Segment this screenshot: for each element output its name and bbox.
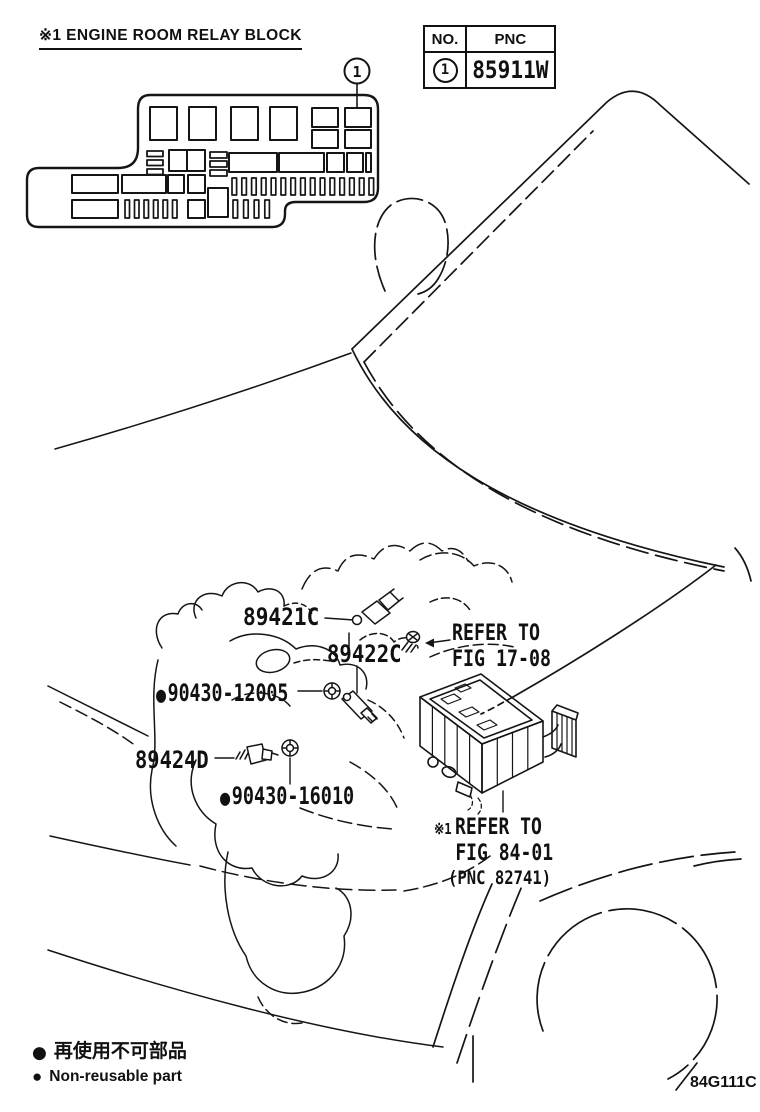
relay-block-callout-number[interactable]: 1 (352, 63, 361, 81)
refer-fig-84-01-line3: (PNC 82741) (448, 867, 553, 889)
pnc-table-no-header: NO. (424, 26, 466, 52)
refer-fig-84-01-line1: ※1REFER TO (434, 815, 553, 841)
bolt-glyph (402, 632, 420, 653)
refer-fig-84-01-line2: FIG 84-01 (455, 841, 553, 867)
refer-fig-84-01-refer: REFER TO (455, 815, 542, 840)
parts-catalog-page: 1 ※1 ENGINE ROOM RELAY BLOCK NO. PNC 1 8… (0, 0, 760, 1112)
washer-90430-16010-glyph (282, 740, 298, 756)
note-mark: ※1 (434, 820, 452, 838)
refer-fig-84-01[interactable]: ※1REFER TO FIG 84-01 (PNC 82741) (434, 815, 553, 889)
refer-fig-17-08-line2: FIG 17-08 (452, 647, 551, 673)
car-body-outline (48, 91, 751, 1090)
legend: ●再使用不可部品 ●Non-reusable part (32, 1036, 187, 1087)
callout-90430-12005-text: 90430-12005 (168, 679, 289, 707)
legend-en-text: Non-reusable part (49, 1068, 182, 1085)
relay-block-3d-drawing (420, 674, 578, 814)
pnc-table-pnc-header: PNC (466, 26, 555, 52)
callout-90430-12005[interactable]: ●90430-12005 (156, 681, 288, 707)
refer-fig-17-08[interactable]: REFER TO FIG 17-08 (452, 621, 551, 673)
callout-89421c[interactable]: 89421C (243, 605, 319, 629)
legend-jp-text: 再使用不可部品 (54, 1040, 187, 1062)
washer-90430-12005-glyph (324, 683, 340, 699)
pnc-row-number-badge[interactable]: 1 (433, 58, 458, 83)
non-reusable-bullet-icon: ● (220, 786, 230, 811)
callout-90430-16010[interactable]: ●90430-16010 (220, 784, 354, 810)
refer-arrowhead (425, 639, 434, 648)
callout-89424d[interactable]: 89424D (135, 748, 209, 772)
non-reusable-bullet-icon: ● (32, 1043, 47, 1063)
callout-89422c[interactable]: 89422C (327, 642, 402, 666)
pnc-row-part-code[interactable]: 85911W (472, 56, 548, 84)
non-reusable-bullet-icon: ● (156, 683, 166, 708)
figure-code: 84G111C (690, 1074, 757, 1092)
callout-90430-16010-text: 90430-16010 (232, 782, 354, 810)
non-reusable-bullet-icon: ● (32, 1067, 42, 1086)
sensor-89421c-glyph (353, 589, 404, 625)
pnc-table: NO. PNC 1 85911W (423, 25, 556, 89)
page-title: ※1 ENGINE ROOM RELAY BLOCK (39, 26, 302, 50)
legend-en-row: ●Non-reusable part (32, 1067, 187, 1087)
legend-jp-row: ●再使用不可部品 (32, 1036, 187, 1063)
relay-block-detail-drawing (27, 95, 378, 227)
sensor-89424d-glyph (236, 744, 278, 764)
refer-fig-17-08-line1: REFER TO (452, 621, 551, 647)
pnc-table-row: 1 85911W (424, 52, 555, 88)
pnc-table-header-row: NO. PNC (424, 26, 555, 52)
sensor-89422c-glyph (342, 691, 377, 723)
diagram-line-art: 1 (0, 0, 760, 1112)
